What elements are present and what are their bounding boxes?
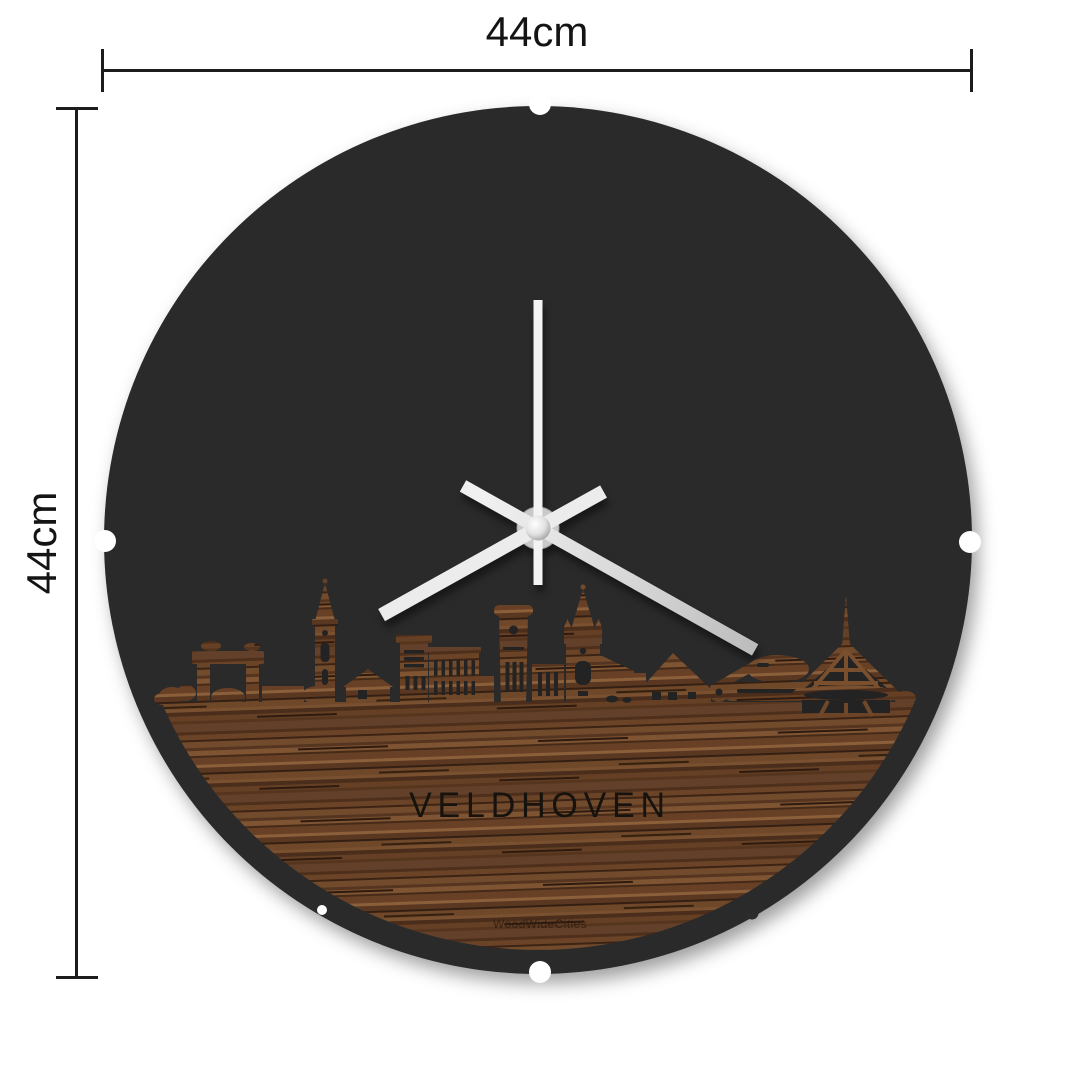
brand-label: WoodWideCities (0, 917, 1080, 931)
city-name-label: VELDHOVEN (16, 786, 1064, 826)
product-dimension-diagram: 44cm 44cm (0, 0, 1080, 1080)
center-cap-ball (526, 516, 551, 541)
mounting-notch-bottom-left (317, 905, 327, 915)
second-hand (534, 300, 543, 585)
mounting-notch-bottom (529, 961, 551, 983)
bush (176, 685, 196, 701)
mounting-notch-right (959, 531, 981, 553)
mounting-notch-top (529, 93, 551, 115)
low-block (532, 664, 564, 706)
low-wall (262, 686, 304, 706)
mounting-notch-left (94, 530, 116, 552)
bush (894, 691, 916, 705)
